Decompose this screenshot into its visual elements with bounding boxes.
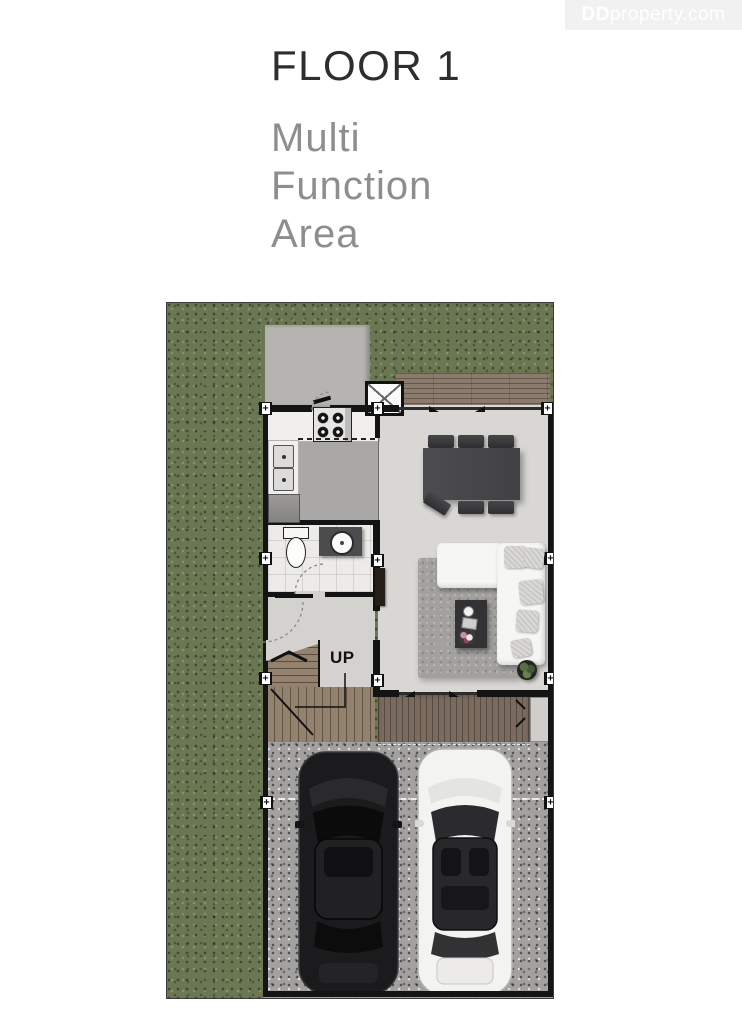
tv-console: [375, 568, 385, 606]
stair-divider-line: [318, 640, 320, 687]
bathroom-door-leaf: [275, 594, 313, 598]
sofa-pillow: [510, 637, 533, 658]
stairs-up-label: UP: [330, 648, 355, 668]
sofa-pillow: [523, 547, 546, 570]
stove-cooktop: [313, 407, 352, 442]
sliding-door-top: [399, 407, 545, 410]
subtitle-line-3: Area: [271, 210, 432, 258]
dining-table: [423, 448, 520, 500]
column-post: [260, 796, 273, 809]
car-black: [295, 749, 402, 997]
kitchen-sink-basin: [273, 468, 294, 491]
bathroom-sink: [330, 531, 354, 555]
coffee-cup: [463, 606, 474, 617]
porch-edge-dashed-line: [378, 744, 530, 745]
kitchen-appliance: [268, 494, 300, 523]
wall-stair-right: [373, 640, 380, 697]
concrete-pad: [265, 325, 370, 407]
dining-chair: [488, 435, 514, 448]
sofa-pillow: [518, 579, 544, 605]
wall-living-bottom-left: [373, 690, 399, 697]
column-post: [259, 402, 272, 415]
floor-plan: UP: [167, 303, 553, 998]
kitchen-dining-divider-line: [378, 438, 379, 525]
column-post: [259, 552, 272, 565]
car-white: [415, 746, 515, 998]
staircase-lower-flight: [266, 687, 375, 742]
page: { "watermark": { "brand_bold": "DD", "br…: [0, 0, 742, 1024]
column-post: [371, 554, 384, 567]
brand-watermark-bold: DD: [582, 4, 610, 25]
back-deck: [395, 373, 550, 408]
sofa-chaise: [437, 543, 503, 588]
column-post: [371, 402, 384, 415]
counter-edge-line: [298, 438, 378, 440]
column-post: [544, 552, 553, 565]
wall-bathroom-bottom-right: [325, 592, 380, 597]
toilet-bowl: [286, 537, 306, 568]
wall-bottom: [263, 991, 553, 997]
subtitle-line-1: Multi: [271, 114, 432, 162]
flower-decor: [458, 629, 475, 645]
wall-living-bottom-right: [477, 690, 553, 697]
wall-right: [548, 405, 553, 996]
potted-plant: [517, 660, 537, 680]
entry-step: [530, 697, 550, 742]
dining-chair: [458, 501, 484, 514]
brand-watermark: DDproperty.com: [565, 0, 742, 30]
staircase-upper-flight: [266, 640, 318, 687]
hallway-floor: [268, 592, 375, 640]
column-post: [544, 796, 553, 809]
page-subtitle: Multi Function Area: [271, 114, 432, 258]
column-post: [371, 674, 384, 687]
sofa-pillow: [515, 609, 538, 632]
dining-chair: [488, 501, 514, 514]
entry-porch-deck: [378, 692, 530, 742]
dining-chair: [428, 435, 454, 448]
page-title: FLOOR 1: [271, 42, 461, 90]
column-post: [544, 672, 553, 685]
column-post: [541, 402, 553, 415]
subtitle-line-2: Function: [271, 162, 432, 210]
brand-watermark-rest: property.com: [610, 4, 725, 25]
kitchen-sink-basin: [273, 445, 294, 468]
sliding-door-bottom: [399, 692, 477, 695]
dining-chair: [458, 435, 484, 448]
column-post: [259, 672, 272, 685]
table-book: [461, 617, 477, 630]
